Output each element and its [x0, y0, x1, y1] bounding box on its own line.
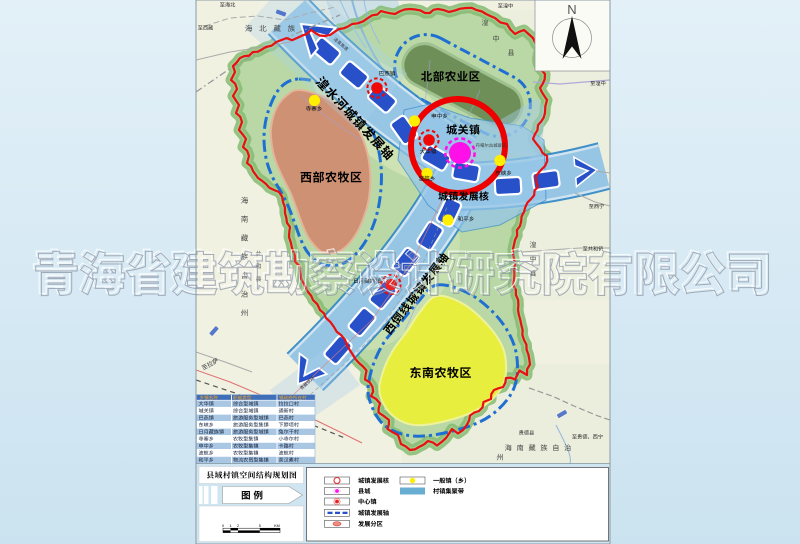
svg-text:KM: KM [274, 524, 280, 528]
svg-text:N: N [567, 2, 576, 17]
svg-text:0: 0 [222, 524, 224, 528]
svg-text:5: 5 [259, 524, 261, 528]
svg-text:2: 2 [237, 524, 239, 528]
svg-text:1: 1 [229, 524, 231, 528]
